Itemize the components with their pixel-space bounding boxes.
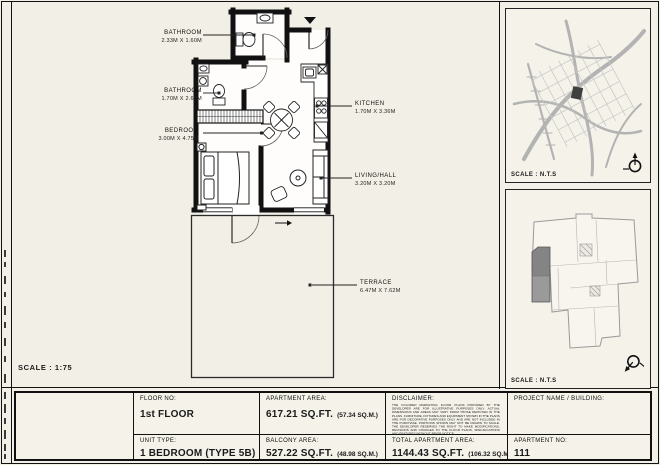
room-name: BATHROOM [110, 29, 202, 37]
apartment-no-label: APARTMENT NO: [514, 438, 644, 444]
terrace-door [232, 216, 259, 243]
floor-cell: FLOOR NO: 1st FLOOR [133, 393, 259, 434]
apartment-area-value: 617.21 SQ.FT. [266, 409, 333, 420]
left-margin-rule [11, 1, 12, 463]
north-arrow-icon [622, 152, 644, 174]
drawing-sheet: BATHROOM 2.33M X 1.60M BATHROOM 1.70M X … [0, 0, 660, 465]
disclaimer-label: DISCLAIMER: [392, 396, 501, 402]
exit-arrow [275, 220, 292, 226]
room-name: BATHROOM [110, 87, 202, 95]
room-dims: 3.20M X 3.20M [355, 180, 396, 188]
room-dims: 6.47M X 7.62M [360, 287, 401, 295]
project-cell: PROJECT NAME / BUILDING: [507, 393, 650, 434]
room-name: KITCHEN [355, 100, 396, 108]
project-label: PROJECT NAME / BUILDING: [514, 396, 644, 402]
location-map-scale: SCALE : N.T.S [511, 172, 557, 178]
total-area-cell: TOTAL APARTMENT AREA: 1144.43 SQ.FT.(106… [385, 434, 507, 459]
north-arrow-icon [622, 354, 644, 376]
balcony-area-value: 527.22 SQ.FT. [266, 448, 333, 459]
balcony-area-sqm: (48.98 SQ.M.) [337, 451, 378, 458]
apartment-area-cell: APARTMENT AREA: 617.21 SQ.FT.(57.34 SQ.M… [259, 393, 385, 434]
terrace-outline [192, 216, 334, 378]
title-block: FLOOR NO: 1st FLOOR APARTMENT AREA: 617.… [14, 391, 652, 461]
room-label-kitchen: KITCHEN 1.70M X 3.36M [355, 100, 396, 116]
disclaimer-cell: DISCLAIMER: THE COLORED MARKETING FLOOR … [385, 393, 507, 434]
apartment-area-label: APARTMENT AREA: [266, 396, 379, 402]
room-label-bathroom-2: BATHROOM 1.70M X 2.60M [110, 87, 202, 103]
total-area-label: TOTAL APARTMENT AREA: [392, 438, 501, 444]
room-dims: 1.70M X 3.36M [355, 108, 396, 116]
floor-label: FLOOR NO: [140, 396, 253, 402]
disclaimer-text: THE COLORED MARKETING FLOOR PLANS PROVID… [392, 404, 500, 434]
room-label-terrace: TERRACE 6.47M X 7.62M [360, 279, 401, 295]
entry-marker-icon [304, 17, 316, 24]
wardrobe [197, 110, 263, 123]
room-label-bathroom-1: BATHROOM 2.33M X 1.60M [110, 29, 202, 45]
apartment-area-sqm: (57.34 SQ.M.) [337, 412, 378, 419]
key-plan-panel: SCALE : N.T.S [505, 189, 651, 389]
balcony-area-label: BALCONY AREA: [266, 438, 379, 444]
apartment-no-value: 111 [514, 448, 644, 459]
apartment-no-cell: APARTMENT NO: 111 [507, 434, 650, 459]
key-plan-scale: SCALE : N.T.S [511, 378, 557, 384]
unit-type-label: UNIT TYPE: [140, 438, 253, 444]
coffee-table [290, 170, 306, 186]
floor-plan [11, 2, 500, 386]
unit-type-cell: UNIT TYPE: 1 BEDROOM (TYPE 5B) [133, 434, 259, 459]
room-name: BEDROOM [107, 127, 199, 135]
location-map-panel: SCALE : N.T.S [505, 8, 651, 183]
right-column-rule [499, 2, 500, 389]
unit-type-value: 1 BEDROOM (TYPE 5B) [140, 448, 253, 459]
room-dims: 2.33M X 1.60M [110, 37, 202, 45]
sheet-scale-label: SCALE : 1:75 [18, 363, 72, 372]
room-name: TERRACE [360, 279, 401, 287]
balcony-area-cell: BALCONY AREA: 527.22 SQ.FT.(48.98 SQ.M.) [259, 434, 385, 459]
bed [197, 143, 249, 210]
room-name: LIVING/HALL [355, 172, 396, 180]
room-label-bedroom: BEDROOM 3.00M X 4.75M [107, 127, 199, 143]
logo-cell [16, 393, 133, 459]
highlighted-unit [532, 247, 550, 302]
total-area-value: 1144.43 SQ.FT. [392, 448, 464, 459]
total-area-sqm: (106.32 SQ.M.) [468, 451, 507, 458]
room-dims: 1.70M X 2.60M [110, 95, 202, 103]
room-label-living: LIVING/HALL 3.20M X 3.20M [355, 172, 396, 188]
floor-value: 1st FLOOR [140, 409, 253, 420]
room-dims: 3.00M X 4.75M [107, 135, 199, 143]
